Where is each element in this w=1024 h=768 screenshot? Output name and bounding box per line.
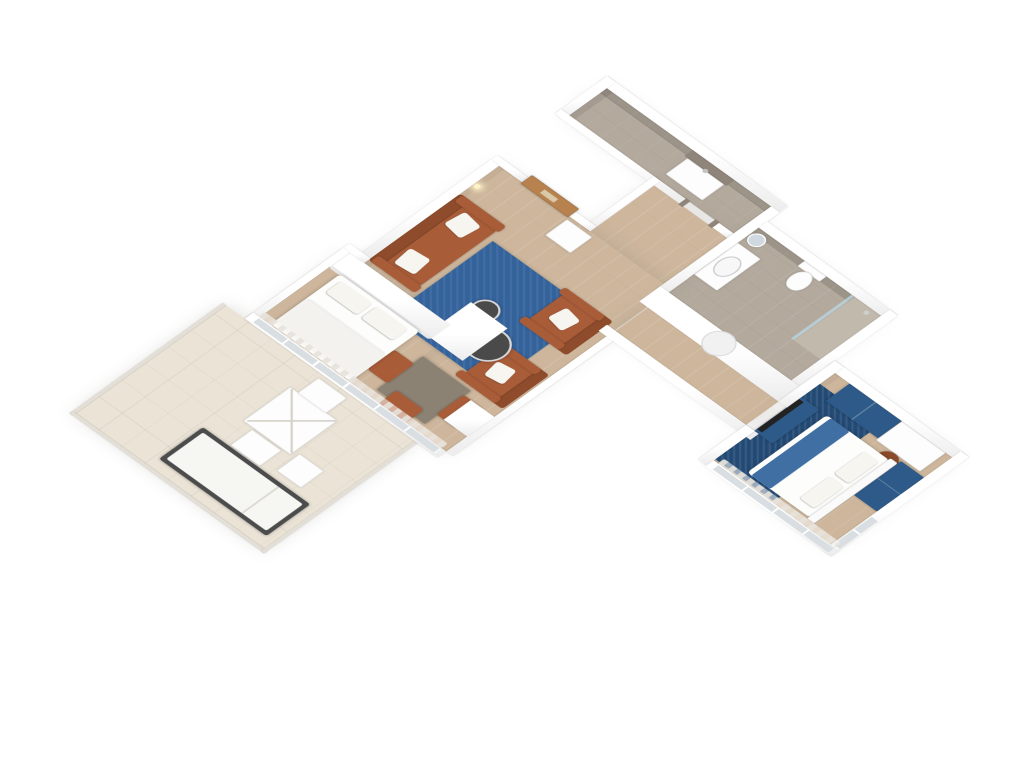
isometric-plan (73, 61, 1024, 768)
floorplan-scene: 3D isometric floor plan render of a one-… (0, 0, 1024, 768)
table-cross-bar (291, 389, 293, 453)
